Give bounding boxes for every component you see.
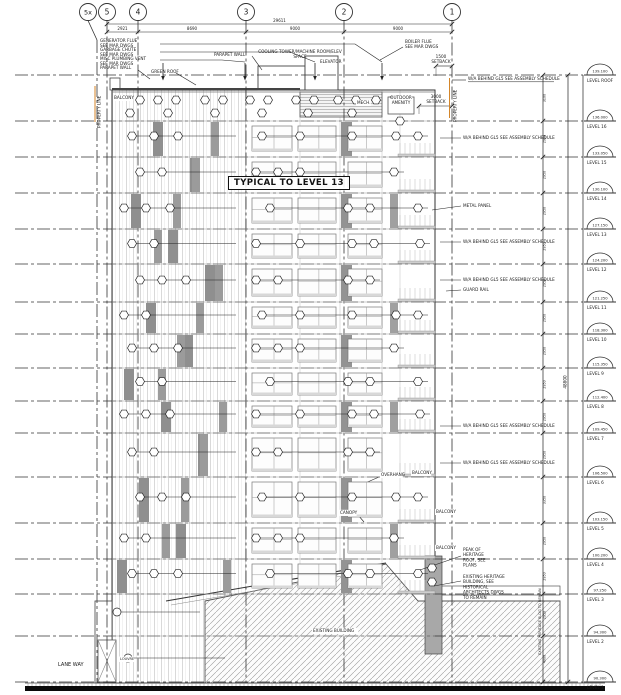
svg-text:109.450: 109.450 (592, 428, 608, 432)
keynote-hex-icon (296, 344, 305, 352)
keynote-hex-icon (201, 96, 210, 104)
svg-text:133.050: 133.050 (592, 152, 608, 156)
svg-text:LEVEL ROOF: LEVEL ROOF (587, 78, 614, 83)
svg-text:4000: 4000 (543, 655, 547, 663)
keynote-hex-icon (128, 240, 137, 248)
svg-text:139.100: 139.100 (592, 70, 608, 74)
keynote-hex-icon (390, 168, 399, 176)
level-datum-marker: 130.100LEVEL 14 (584, 182, 616, 201)
keynote-hex-icon (348, 240, 357, 248)
keynote-hex-icon (120, 410, 129, 418)
keynote-hex-icon (128, 448, 137, 456)
svg-text:LOUVRE: LOUVRE (120, 657, 134, 661)
keynote-hex-icon (304, 109, 313, 117)
keynote-hex-icon (150, 344, 159, 352)
svg-text:OUTDOORAMENITY: OUTDOORAMENITY (390, 95, 412, 105)
svg-text:EXISTING BUILDING: EXISTING BUILDING (313, 628, 354, 633)
level-datum-marker: 94.300LEVEL 2 (584, 625, 616, 644)
svg-text:2950: 2950 (543, 347, 547, 355)
svg-text:8690: 8690 (187, 26, 198, 31)
svg-text:2: 2 (342, 8, 347, 17)
elevation-drawing-sheet: 5x54321296112921869090009000310029502950… (0, 0, 621, 695)
svg-text:LEVEL 10: LEVEL 10 (587, 337, 607, 342)
svg-text:94.300: 94.300 (594, 631, 608, 635)
keynote-hex-icon (414, 378, 423, 386)
keynote-hex-icon (274, 448, 283, 456)
svg-text:LEVEL 4: LEVEL 4 (587, 562, 604, 567)
keynote-hex-icon (372, 96, 381, 104)
keynote-hex-icon (258, 109, 267, 117)
keynote-hex-icon (428, 564, 437, 572)
keynote-hex-icon (252, 448, 261, 456)
keynote-hex-icon (390, 344, 399, 352)
level-datum-marker: 103.150LEVEL 5 (584, 512, 616, 531)
keynote-hex-icon (174, 132, 183, 140)
level-datum-marker: 127.150LEVEL 13 (584, 218, 616, 237)
grid-bubble: 1 (444, 4, 461, 21)
keynote-hex-icon (174, 344, 183, 352)
keynote-hex-icon (252, 534, 261, 542)
keynote-hex-icon (366, 378, 375, 386)
svg-text:2921: 2921 (117, 26, 128, 31)
svg-text:W/A BEHIND GL5 SEE ASSEMBLY SC: W/A BEHIND GL5 SEE ASSEMBLY SCHEDULE (468, 76, 560, 81)
svg-text:2950: 2950 (543, 537, 547, 545)
svg-text:130.100: 130.100 (592, 188, 608, 192)
keynote-hex-icon (158, 493, 167, 501)
keynote-hex-icon (128, 132, 137, 140)
building-elevation-canvas: 5x54321296112921869090009000310029502950… (0, 0, 621, 695)
keynote-hex-icon (344, 204, 353, 212)
svg-text:PARAPET WALL: PARAPET WALL (214, 52, 246, 57)
keynote-hex-icon (154, 96, 163, 104)
keynote-hex-icon (150, 240, 159, 248)
svg-text:2950: 2950 (543, 171, 547, 179)
keynote-hex-icon (366, 448, 375, 456)
keynote-hex-icon (296, 311, 305, 319)
keynote-hex-icon (348, 410, 357, 418)
keynote-hex-icon (334, 96, 343, 104)
keynote-hex-icon (211, 109, 220, 117)
level-datum-marker: 133.050LEVEL 15 (584, 146, 616, 165)
level-datum-marker: 97.250LEVEL 3 (584, 583, 616, 602)
svg-text:LEVEL 8: LEVEL 8 (587, 404, 604, 409)
keynote-hex-icon (348, 311, 357, 319)
svg-text:LEVEL 11: LEVEL 11 (587, 305, 607, 310)
keynote-hex-icon (370, 240, 379, 248)
keynote-hex-icon (120, 204, 129, 212)
svg-text:118.300: 118.300 (592, 329, 608, 333)
keynote-hex-icon (274, 168, 283, 176)
svg-text:LEVEL 16: LEVEL 16 (587, 124, 607, 129)
svg-text:ELEVATOR: ELEVATOR (320, 59, 342, 64)
svg-text:121.250: 121.250 (592, 297, 608, 301)
level-datum-marker: 100.200LEVEL 4 (584, 548, 616, 567)
keynote-hex-icon (348, 132, 357, 140)
svg-text:LEVEL 7: LEVEL 7 (587, 436, 604, 441)
keynote-hex-icon (266, 378, 275, 386)
svg-text:PEAK OFHERITAGEROOF, SEEPLANS: PEAK OFHERITAGEROOF, SEEPLANS (463, 547, 486, 568)
svg-text:BALCONY: BALCONY (114, 95, 134, 100)
svg-text:2950: 2950 (543, 380, 547, 388)
keynote-hex-icon (150, 448, 159, 456)
keynote-hex-icon (182, 493, 191, 501)
svg-text:LEVEL 15: LEVEL 15 (587, 160, 607, 165)
keynote-hex-icon (150, 570, 159, 578)
svg-text:LEVEL 2: LEVEL 2 (587, 639, 604, 644)
svg-text:W/A BEHIND GL5 SEE ASSEMBLY SC: W/A BEHIND GL5 SEE ASSEMBLY SCHEDULE (463, 423, 555, 428)
level-datum-marker: 90.300LEVEL 1 (584, 671, 616, 690)
svg-text:LEVEL 13: LEVEL 13 (587, 232, 607, 237)
keynote-hex-icon (392, 493, 401, 501)
keynote-hex-icon (292, 96, 301, 104)
keynote-hex-icon (126, 109, 135, 117)
level-markers: 139.100LEVEL ROOF136.000LEVEL 16133.050L… (584, 64, 616, 690)
svg-text:90.300: 90.300 (594, 677, 608, 681)
svg-text:1: 1 (450, 8, 455, 17)
keynote-hex-icon (136, 168, 145, 176)
svg-text:112.400: 112.400 (592, 396, 608, 400)
svg-text:OVERHANG: OVERHANG (381, 472, 405, 477)
svg-text:1500SETBACK: 1500SETBACK (431, 54, 450, 64)
keynote-hex-icon (166, 410, 175, 418)
cooling-tower-enclosure (258, 66, 305, 90)
svg-text:103.150: 103.150 (592, 518, 608, 522)
keynote-hex-icon (128, 570, 137, 578)
svg-text:MECH.: MECH. (357, 100, 371, 105)
svg-text:136.000: 136.000 (592, 116, 608, 120)
svg-text:GREEN ROOF: GREEN ROOF (151, 69, 179, 74)
keynote-hex-icon (416, 410, 425, 418)
keynote-hex-icon (264, 96, 273, 104)
svg-text:W/A BEHIND GL5 SEE ASSEMBLY SC: W/A BEHIND GL5 SEE ASSEMBLY SCHEDULE (463, 239, 555, 244)
keynote-hex-icon (344, 276, 353, 284)
keynote-hex-icon (219, 96, 228, 104)
svg-text:CANOPY: CANOPY (340, 510, 358, 515)
svg-text:2950: 2950 (543, 314, 547, 322)
svg-text:LEVEL 1: LEVEL 1 (587, 685, 604, 690)
svg-text:115.350: 115.350 (592, 363, 608, 367)
svg-text:METAL PANEL: METAL PANEL (463, 203, 492, 208)
svg-text:LEVEL 12: LEVEL 12 (587, 267, 607, 272)
level-datum-marker: 139.100LEVEL ROOF (584, 64, 616, 83)
keynote-hex-icon (310, 96, 319, 104)
keynote-hex-icon (296, 493, 305, 501)
svg-text:106.500: 106.500 (592, 472, 608, 476)
keynote-hex-icon (348, 493, 357, 501)
keynote-hex-icon (296, 534, 305, 542)
keynote-hex-icon (428, 578, 437, 586)
keynote-hex-icon (266, 570, 275, 578)
svg-text:127.150: 127.150 (592, 224, 608, 228)
svg-text:9000: 9000 (393, 26, 404, 31)
svg-text:2950: 2950 (543, 611, 547, 619)
svg-text:LEVEL 9: LEVEL 9 (587, 371, 604, 376)
svg-text:29611: 29611 (273, 18, 286, 23)
keynote-hex-icon (120, 534, 129, 542)
svg-text:3100: 3100 (543, 94, 547, 102)
keynote-hex-icon (390, 534, 399, 542)
keynote-hex-icon (274, 276, 283, 284)
svg-text:97.250: 97.250 (594, 589, 608, 593)
level-datum-marker: 106.500LEVEL 6 (584, 466, 616, 485)
keynote-hex-icon (416, 240, 425, 248)
svg-text:5: 5 (105, 8, 110, 17)
keynote-hex-icon (392, 132, 401, 140)
keynote-hex-icon (344, 570, 353, 578)
keynote-hex-icon (344, 448, 353, 456)
svg-text:LANE WAY: LANE WAY (58, 662, 85, 668)
keynote-hex-icon (274, 344, 283, 352)
svg-text:2950: 2950 (543, 413, 547, 421)
keynote-hex-icon (164, 109, 173, 117)
keynote-hex-icon (344, 378, 353, 386)
svg-text:48800: 48800 (563, 375, 568, 389)
keynote-hex-icon (252, 240, 261, 248)
level-datum-marker: 115.350LEVEL 9 (584, 357, 616, 376)
keynote-hex-icon (252, 410, 261, 418)
keynote-hex-icon (142, 311, 151, 319)
svg-text:2950: 2950 (543, 451, 547, 459)
keynote-hex-icon (174, 570, 183, 578)
level-datum-marker: 121.250LEVEL 11 (584, 291, 616, 310)
svg-text:EXISTING HERITAGE BLDG TO REMA: EXISTING HERITAGE BLDG TO REMAIN (538, 588, 542, 655)
keynote-hex-icon (136, 378, 145, 386)
svg-text:LEVEL 5: LEVEL 5 (587, 526, 604, 531)
keynote-circle-icon (113, 608, 121, 616)
keynote-hex-icon (414, 311, 423, 319)
svg-text:5x: 5x (84, 9, 92, 17)
keynote-hex-icon (182, 276, 191, 284)
keynote-hex-icon (414, 570, 423, 578)
keynote-hex-icon (274, 534, 283, 542)
svg-text:BALCONY: BALCONY (436, 545, 456, 550)
svg-text:3: 3 (244, 8, 249, 17)
keynote-hex-icon (128, 344, 137, 352)
keynote-hex-icon (414, 132, 423, 140)
keynote-hex-icon (142, 410, 151, 418)
keynote-hex-icon (252, 344, 261, 352)
keynote-hex-icon (366, 570, 375, 578)
keynote-hex-icon (142, 534, 151, 542)
keynote-hex-icon (366, 276, 375, 284)
keynote-hex-icon (158, 168, 167, 176)
level-datum-marker: 124.200LEVEL 12 (584, 253, 616, 272)
keynote-hex-icon (246, 96, 255, 104)
keynote-hex-icon (172, 96, 181, 104)
keynote-hex-icon (166, 204, 175, 212)
keynote-hex-icon (136, 493, 145, 501)
keynote-hex-icon (296, 410, 305, 418)
keynote-hex-icon (258, 493, 267, 501)
keynote-hex-icon (252, 168, 261, 176)
keynote-hex-icon (296, 132, 305, 140)
svg-text:BALCONY: BALCONY (412, 470, 432, 475)
keynote-hex-icon (348, 109, 357, 117)
level-datum-marker: 136.000LEVEL 16 (584, 110, 616, 129)
grid-bubble: 3 (238, 4, 255, 21)
keynote-hex-icon (258, 132, 267, 140)
svg-text:BALCONY: BALCONY (436, 509, 456, 514)
typical-note-box: TYPICAL TO LEVEL 13 (228, 176, 350, 190)
keynote-hex-icon (296, 168, 305, 176)
grid-bubble: 4 (130, 4, 147, 21)
level-datum-marker: 118.300LEVEL 10 (584, 323, 616, 342)
keynote-hex-icon (158, 276, 167, 284)
keynote-hex-icon (414, 493, 423, 501)
keynote-hex-icon (392, 311, 401, 319)
svg-text:124.200: 124.200 (592, 259, 608, 263)
keynote-hex-icon (252, 276, 261, 284)
svg-text:GUARD RAIL: GUARD RAIL (463, 287, 489, 292)
keynote-hex-icon (158, 378, 167, 386)
svg-text:2950: 2950 (543, 572, 547, 580)
svg-text:PROPERTY LINE: PROPERTY LINE (453, 89, 458, 122)
svg-text:2950: 2950 (543, 207, 547, 215)
keynote-hex-icon (414, 204, 423, 212)
svg-text:W/A BEHIND GL5 SEE ASSEMBLY SC: W/A BEHIND GL5 SEE ASSEMBLY SCHEDULE (463, 277, 555, 282)
grid-bubble: 2 (336, 4, 353, 21)
svg-text:W/A BEHIND GL5 SEE ASSEMBLY SC: W/A BEHIND GL5 SEE ASSEMBLY SCHEDULE (463, 460, 555, 465)
svg-text:100.200: 100.200 (592, 554, 608, 558)
svg-text:LEVEL 6: LEVEL 6 (587, 480, 604, 485)
keynote-hex-icon (136, 96, 145, 104)
keynote-hex-icon (266, 204, 275, 212)
keynote-hex-icon (150, 132, 159, 140)
svg-text:3350: 3350 (543, 496, 547, 504)
level-datum-marker: 109.450LEVEL 7 (584, 422, 616, 441)
svg-text:9000: 9000 (290, 26, 301, 31)
keynote-hex-icon (296, 240, 305, 248)
keynote-hex-icon (366, 204, 375, 212)
svg-text:LEVEL 3: LEVEL 3 (587, 597, 604, 602)
keynote-hex-icon (258, 311, 267, 319)
keynote-hex-icon (136, 276, 145, 284)
level-datum-marker: 112.400LEVEL 8 (584, 390, 616, 409)
keynote-hex-icon (142, 204, 151, 212)
svg-text:PROPERTY LINE: PROPERTY LINE (97, 95, 102, 128)
keynote-hex-icon (370, 410, 379, 418)
svg-text:4: 4 (136, 8, 141, 17)
svg-text:LEVEL 14: LEVEL 14 (587, 196, 607, 201)
svg-text:W/A BEHIND GL5 SEE ASSEMBLY SC: W/A BEHIND GL5 SEE ASSEMBLY SCHEDULE (463, 135, 555, 140)
keynote-hex-icon (120, 311, 129, 319)
grid-bubble: 5x (80, 4, 97, 21)
keynote-hex-icon (396, 117, 405, 125)
svg-text:BOILER FLUESEE MAR DWGS: BOILER FLUESEE MAR DWGS (405, 39, 439, 49)
svg-text:PARAPET WALL: PARAPET WALL (100, 65, 132, 70)
grid-bubble: 5 (99, 4, 116, 21)
